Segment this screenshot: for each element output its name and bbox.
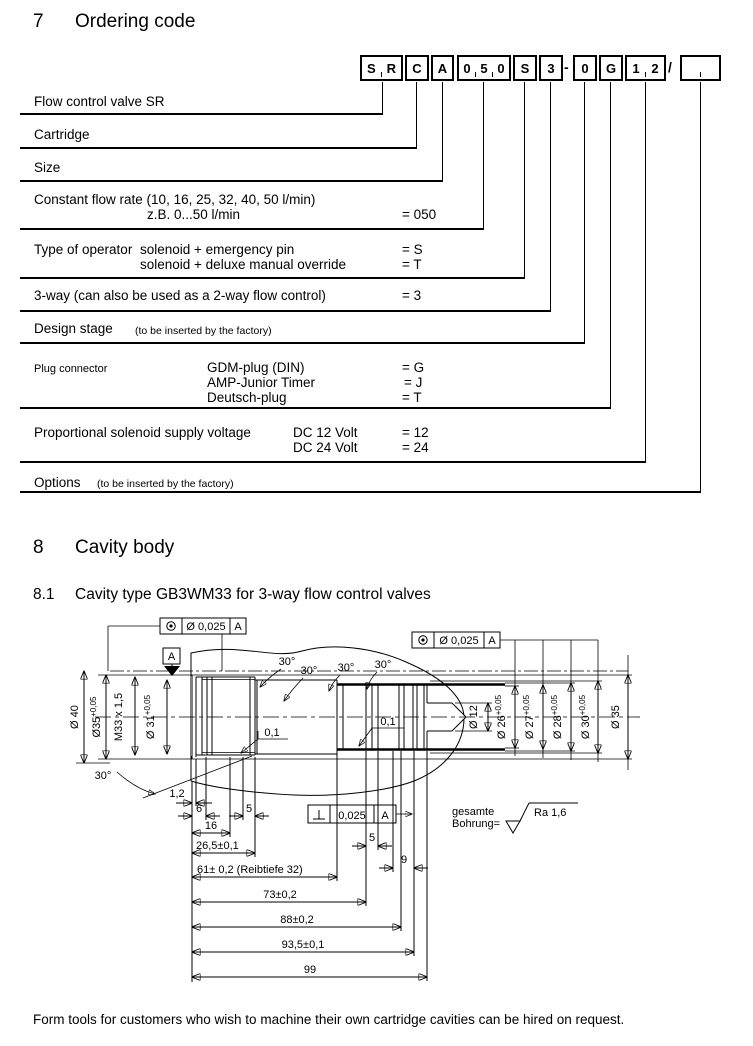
- code-box-g: G: [599, 55, 623, 81]
- ordering-option: z.B. 0...50 l/min: [147, 207, 240, 222]
- svg-text:73±0,2: 73±0,2: [263, 889, 297, 901]
- svg-text:30°: 30°: [279, 656, 296, 668]
- svg-text:0,1: 0,1: [264, 727, 279, 739]
- ordering-row-rule: [20, 310, 551, 312]
- ordering-row-label: Constant flow rate (10, 16, 25, 32, 40, …: [34, 192, 315, 207]
- separator-tick: [700, 72, 701, 77]
- code-box-sr: SR: [360, 55, 403, 81]
- svg-text:93,5±0,1: 93,5±0,1: [282, 939, 325, 951]
- perpendicularity-icon: [313, 810, 325, 819]
- separator-tick: [492, 72, 493, 77]
- ordering-value: = T: [402, 257, 422, 272]
- svg-text:0,1: 0,1: [380, 716, 395, 728]
- svg-text:Ø 0,025: Ø 0,025: [439, 635, 478, 647]
- svg-text:gesamte: gesamte: [452, 806, 494, 818]
- code-char: 3: [547, 61, 554, 76]
- svg-text:1,2: 1,2: [169, 788, 184, 800]
- ordering-row-label: Size: [34, 160, 60, 175]
- svg-text:61± 0,2 (Reibtiefe 32): 61± 0,2 (Reibtiefe 32): [197, 864, 303, 876]
- ordering-row-rule: [20, 228, 484, 230]
- section7-title: Ordering code: [75, 11, 195, 33]
- connector-line: [610, 82, 611, 407]
- code-char: R: [387, 61, 396, 76]
- svg-text:30°: 30°: [95, 770, 112, 782]
- connector-line: [550, 82, 551, 310]
- ordering-option: DC 24 Volt: [293, 440, 358, 455]
- connector-line: [524, 82, 525, 277]
- ordering-row-label: 3-way (can also be used as a 2-way flow …: [34, 288, 326, 303]
- svg-text:Ø 30+0,05: Ø 30+0,05: [578, 694, 592, 739]
- code-char: 0: [497, 61, 504, 76]
- ordering-row-label: Type of operator: [34, 242, 132, 257]
- ordering-value: = S: [402, 242, 423, 257]
- code-box-12: 12: [625, 55, 666, 81]
- footer-note: Form tools for customers who wish to mac…: [33, 1012, 624, 1027]
- datum-flag: A: [163, 648, 180, 676]
- svg-text:Bohrung=: Bohrung=: [452, 818, 500, 830]
- code-box-options: [680, 55, 721, 81]
- code-slash: /: [668, 59, 672, 75]
- ordering-option: AMP-Junior Timer: [207, 375, 315, 390]
- document-page: 7 Ordering code SR C A 050 S 3 - 0 G 12 …: [0, 0, 753, 1046]
- separator-tick: [475, 72, 476, 77]
- ordering-row-label: Flow control valve SR: [34, 94, 165, 109]
- ordering-row-note: (to be inserted by the factory): [97, 478, 234, 490]
- connector-line: [483, 82, 484, 228]
- svg-text:30°: 30°: [375, 659, 392, 671]
- ordering-value: = J: [404, 375, 422, 390]
- svg-text:5: 5: [246, 803, 252, 815]
- code-char: 5: [480, 61, 487, 76]
- ordering-option: solenoid + emergency pin: [140, 242, 294, 257]
- ordering-row-rule: [20, 342, 585, 344]
- ordering-value: = 050: [402, 207, 436, 222]
- ordering-row-rule: [20, 147, 417, 149]
- tolerance-frame-perpendicularity: 0,025 A: [308, 805, 412, 823]
- code-char: S: [367, 61, 376, 76]
- concentricity-icon: [167, 622, 175, 630]
- code-box-0: 0: [573, 55, 597, 81]
- svg-text:9: 9: [401, 854, 407, 866]
- svg-text:26,5±0,1: 26,5±0,1: [196, 840, 239, 852]
- svg-text:A: A: [381, 810, 389, 822]
- svg-text:16: 16: [205, 820, 217, 832]
- svg-text:Ø 12: Ø 12: [468, 705, 480, 729]
- left-diameter-dimensions: Ø 40 Ø35+0,05 M33 x 1,5 Ø 31+0,05: [69, 671, 167, 763]
- section8-title: Cavity body: [75, 537, 174, 559]
- code-char: C: [412, 61, 421, 76]
- ordering-row-rule: [20, 407, 611, 409]
- section7-number: 7: [33, 11, 44, 33]
- connector-line: [584, 82, 585, 342]
- bore-cavity: [191, 676, 466, 756]
- connector-line: [442, 82, 443, 180]
- svg-text:Ø 40: Ø 40: [69, 705, 81, 729]
- svg-text:A: A: [488, 635, 496, 647]
- svg-text:Ø 28+0,05: Ø 28+0,05: [550, 694, 564, 739]
- svg-text:30°: 30°: [301, 665, 318, 677]
- ordering-value: = 3: [402, 288, 421, 303]
- ordering-option: DC 12 Volt: [293, 425, 358, 440]
- code-box-050: 050: [457, 55, 511, 81]
- svg-text:0,025: 0,025: [338, 810, 366, 822]
- svg-text:A: A: [234, 621, 242, 633]
- code-char: S: [521, 61, 530, 76]
- surface-finish-note: gesamte Bohrung= Ra 1,6: [452, 803, 578, 833]
- ordering-row-label: Design stage: [34, 321, 113, 336]
- ordering-row-label: Options: [34, 475, 81, 490]
- svg-text:5: 5: [369, 832, 375, 844]
- ordering-row-rule: [20, 461, 646, 463]
- connector-line: [645, 82, 646, 461]
- code-box-3: 3: [539, 55, 563, 81]
- svg-text:6: 6: [196, 803, 202, 815]
- ordering-value: = G: [402, 360, 424, 375]
- svg-text:Ra 1,6: Ra 1,6: [534, 807, 566, 819]
- svg-text:A: A: [168, 651, 176, 663]
- ordering-option: GDM-plug (DIN): [207, 360, 305, 375]
- ordering-row-rule: [20, 113, 383, 115]
- ordering-row-label: Plug connector: [34, 363, 107, 375]
- svg-text:M33 x 1,5: M33 x 1,5: [113, 693, 125, 741]
- code-box-s: S: [513, 55, 537, 81]
- code-dash: -: [564, 59, 569, 75]
- svg-text:Ø35+0,05: Ø35+0,05: [89, 696, 103, 738]
- code-char: A: [438, 61, 447, 76]
- svg-text:30°: 30°: [338, 662, 355, 674]
- code-char: G: [606, 61, 616, 76]
- ordering-row-label: Proportional solenoid supply voltage: [34, 425, 251, 440]
- code-box-a: A: [431, 55, 454, 81]
- code-char: 0: [463, 61, 470, 76]
- code-char: 0: [581, 61, 588, 76]
- separator-tick: [645, 72, 646, 77]
- ordering-row-rule: [20, 180, 443, 182]
- ordering-value: = 24: [402, 440, 429, 455]
- svg-text:Ø 27+0,05: Ø 27+0,05: [522, 694, 536, 739]
- concentricity-icon: [419, 636, 427, 644]
- ordering-row-rule: [20, 277, 525, 279]
- connector-line: [700, 82, 701, 491]
- ordering-value: = T: [402, 390, 422, 405]
- code-char: 2: [651, 61, 658, 76]
- tolerance-frame-concentricity-left: Ø 0,025 A: [108, 618, 246, 671]
- svg-text:Ø 31+0,05: Ø 31+0,05: [143, 694, 157, 739]
- section81-number: 8.1: [33, 586, 55, 604]
- ordering-option: solenoid + deluxe manual override: [140, 257, 346, 272]
- connector-line: [416, 82, 417, 147]
- svg-text:Ø 35: Ø 35: [610, 705, 622, 729]
- separator-tick: [381, 72, 382, 77]
- svg-text:88±0,2: 88±0,2: [280, 914, 314, 926]
- tolerance-frame-concentricity-right: Ø 0,025 A: [412, 632, 598, 648]
- ordering-row-label: Cartridge: [34, 127, 90, 142]
- section81-title: Cavity type GB3WM33 for 3-way flow contr…: [75, 586, 431, 604]
- length-dimensions: 1,2 6 5 16 26,5±0,1 5 9 61± 0,2 (Reibtie…: [169, 788, 428, 977]
- ordering-row-rule: [20, 491, 701, 493]
- cavity-drawing: Ø 0,025 A Ø 0,025 A A: [0, 612, 753, 1012]
- code-char: 1: [632, 61, 639, 76]
- code-box-c: C: [405, 55, 429, 81]
- section8-number: 8: [33, 537, 44, 559]
- svg-text:Ø 26+0,05: Ø 26+0,05: [494, 694, 508, 739]
- svg-text:Ø 0,025: Ø 0,025: [186, 621, 225, 633]
- ordering-value: = 12: [402, 425, 429, 440]
- ordering-row-note: (to be inserted by the factory): [135, 325, 272, 337]
- connector-line: [382, 82, 383, 113]
- svg-text:99: 99: [304, 964, 316, 976]
- ordering-option: Deutsch-plug: [207, 390, 287, 405]
